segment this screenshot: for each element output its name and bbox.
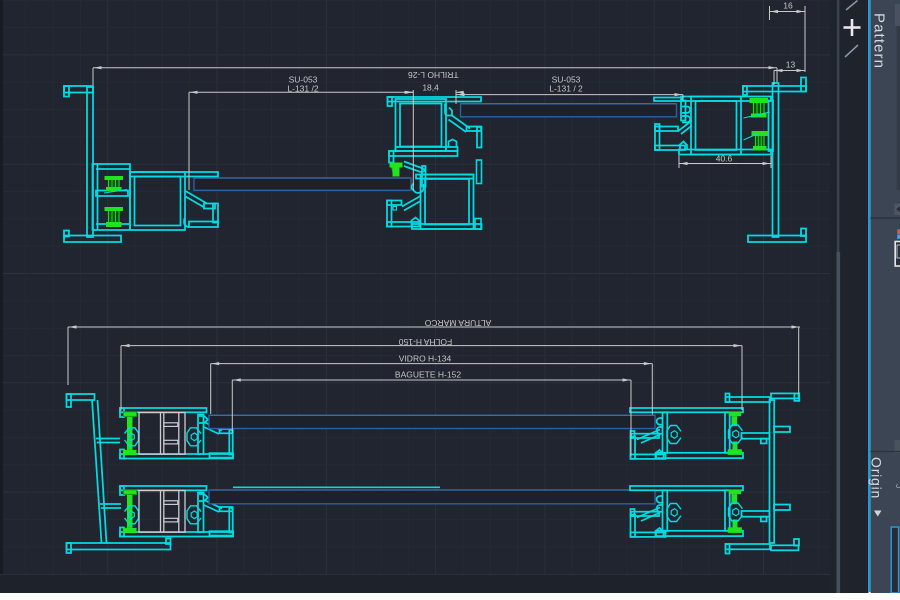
- svg-text:BAGUETE H-152: BAGUETE H-152: [395, 370, 461, 380]
- svg-text:Pattern: Pattern: [871, 13, 888, 69]
- svg-text:TRILHO L-26: TRILHO L-26: [408, 70, 459, 80]
- svg-text:L-131 / 2: L-131 / 2: [549, 83, 583, 93]
- svg-text:FOLHA H-150: FOLHA H-150: [399, 337, 453, 347]
- svg-text:40.6: 40.6: [716, 153, 733, 163]
- svg-text:Origin: Origin: [869, 457, 885, 499]
- svg-text:18,4: 18,4: [422, 82, 439, 92]
- svg-text:16: 16: [783, 0, 793, 10]
- svg-text:J: J: [894, 484, 900, 489]
- svg-text:VIDRO H-134: VIDRO H-134: [399, 353, 452, 363]
- svg-text:13: 13: [786, 59, 796, 69]
- svg-text:ALTURA MARCO: ALTURA MARCO: [424, 318, 491, 328]
- svg-text:L-131 /2: L-131 /2: [287, 83, 318, 93]
